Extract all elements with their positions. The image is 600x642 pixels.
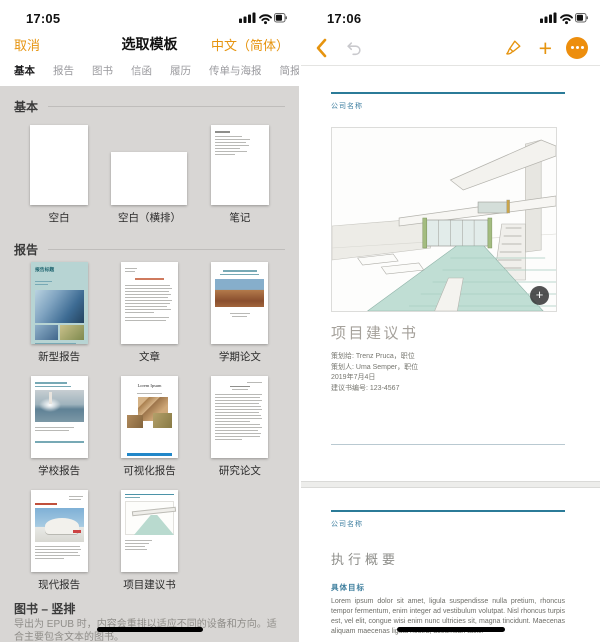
- tab-letters[interactable]: 信函: [131, 63, 152, 78]
- template-blank-landscape[interactable]: 空白（横排）: [111, 115, 187, 225]
- research-paper-cover-art: [211, 376, 268, 458]
- tab-resumes[interactable]: 履历: [170, 63, 191, 78]
- insert-plus-button[interactable]: +: [539, 38, 552, 58]
- meta-line: 2019年7月4日: [331, 373, 565, 384]
- section-header-basic: 基本: [14, 98, 285, 115]
- template-label: 现代报告: [38, 577, 80, 592]
- section-title: 报告: [14, 241, 38, 258]
- template-visual-report[interactable]: Lorem Ipsum 可视化报告: [121, 372, 178, 478]
- school-report-cover-art: [31, 376, 88, 458]
- research-paper-thumbnail[interactable]: [211, 376, 268, 458]
- proposal-meta: 策划给: Trenz Pruca，职位 策划人: Uma Semper，职位 2…: [331, 352, 565, 394]
- article-cover-art: [121, 262, 178, 344]
- project-proposal-cover-art: [121, 490, 178, 572]
- add-image-button[interactable]: +: [530, 286, 549, 305]
- house-sketch: [332, 128, 556, 311]
- template-note[interactable]: 笔记: [211, 115, 269, 225]
- category-tabbar: 基本 报告 图书 信函 履历 传单与海报 简报: [0, 58, 299, 86]
- screenshot-pair: 17:05 取消 选取模板 中文（简体） 基本 报告 图书 信函: [0, 0, 600, 642]
- document-title: 项目建议书: [331, 322, 565, 343]
- status-icons: [239, 11, 287, 25]
- article-thumbnail[interactable]: [121, 262, 178, 344]
- note-thumbnail[interactable]: [211, 125, 269, 205]
- tab-basic[interactable]: 基本: [14, 63, 35, 78]
- template-label: 可视化报告: [123, 463, 176, 478]
- template-modern-report[interactable]: 报告标题 新型报告: [31, 258, 88, 364]
- template-blank[interactable]: 空白: [30, 115, 88, 225]
- back-button[interactable]: [313, 37, 329, 59]
- status-icons: [540, 11, 588, 25]
- template-list: 基本 空白 空白（横排）: [0, 86, 299, 642]
- contemporary-report-thumbnail[interactable]: [31, 490, 88, 572]
- more-button[interactable]: [566, 37, 588, 59]
- page-separator: [301, 481, 600, 488]
- meta-line: 策划人: Uma Semper，职位: [331, 363, 565, 374]
- template-article[interactable]: 文章: [121, 258, 178, 364]
- template-contemporary-report[interactable]: 现代报告: [31, 486, 88, 592]
- template-chooser-screen: 17:05 取消 选取模板 中文（简体） 基本 报告 图书 信函: [0, 0, 299, 642]
- page1-footer-rule: [331, 444, 565, 445]
- section-title: 基本: [14, 98, 38, 115]
- section-divider: [48, 106, 285, 107]
- section-header-books: 图书 – 竖排: [14, 600, 285, 617]
- template-label: 学期论文: [219, 349, 261, 364]
- template-research-paper[interactable]: 研究论文: [211, 372, 268, 478]
- cancel-button[interactable]: 取消: [14, 35, 40, 54]
- visual-report-thumbnail[interactable]: Lorem Ipsum: [121, 376, 178, 458]
- template-label: 研究论文: [219, 463, 261, 478]
- company-name: 公司名称: [331, 519, 565, 529]
- proposal-cover-image[interactable]: +: [331, 127, 557, 312]
- template-label: 空白: [49, 210, 70, 225]
- template-school-report[interactable]: 学校报告: [31, 372, 88, 478]
- format-brush-icon[interactable]: [503, 38, 523, 58]
- header-rule: [331, 510, 565, 512]
- tab-books[interactable]: 图书: [92, 63, 113, 78]
- section-title: 图书 – 竖排: [14, 600, 75, 617]
- section-heading: 执行概要: [331, 549, 565, 568]
- template-term-paper[interactable]: 学期论文: [211, 258, 268, 364]
- meta-line: 建议书编号: 123-4567: [331, 384, 565, 395]
- document-editor-screen: 17:06: [301, 0, 600, 642]
- modern-report-thumbnail[interactable]: 报告标题: [31, 262, 88, 344]
- section-header-report: 报告: [14, 241, 285, 258]
- contemporary-report-cover-art: [31, 490, 88, 572]
- term-paper-cover-art: [211, 262, 268, 344]
- modern-report-cover-art: 报告标题: [31, 262, 88, 344]
- template-label: 文章: [139, 349, 160, 364]
- template-label: 笔记: [229, 210, 250, 225]
- clock: 17:06: [327, 11, 361, 26]
- tab-presentations[interactable]: 简报: [280, 63, 300, 78]
- chooser-navbar: 取消 选取模板 中文（简体）: [0, 30, 299, 58]
- status-bar-right: 17:06: [301, 0, 600, 30]
- language-button[interactable]: 中文（简体）: [211, 35, 289, 54]
- status-bar-left: 17:05: [0, 0, 299, 30]
- template-label: 项目建议书: [123, 577, 176, 592]
- company-name: 公司名称: [331, 101, 565, 111]
- section-divider: [48, 249, 285, 250]
- template-project-proposal[interactable]: 项目建议书: [121, 486, 178, 592]
- project-proposal-thumbnail[interactable]: [121, 490, 178, 572]
- term-paper-thumbnail[interactable]: [211, 262, 268, 344]
- meta-line: 策划给: Trenz Pruca，职位: [331, 352, 565, 363]
- undo-icon[interactable]: [345, 39, 363, 57]
- document-canvas: 公司名称: [301, 66, 600, 642]
- home-indicator[interactable]: [97, 627, 203, 632]
- school-report-thumbnail[interactable]: [31, 376, 88, 458]
- visual-report-cover-art: Lorem Ipsum: [121, 376, 178, 458]
- basic-grid: 空白 空白（横排）: [14, 115, 285, 225]
- home-indicator[interactable]: [397, 627, 505, 632]
- template-label: 学校报告: [38, 463, 80, 478]
- template-label: 空白（横排）: [118, 210, 181, 225]
- tab-flyers-posters[interactable]: 传单与海报: [209, 63, 262, 78]
- clock: 17:05: [26, 11, 60, 26]
- report-grid: 报告标题 新型报告: [14, 258, 285, 592]
- blank-thumbnail[interactable]: [30, 125, 88, 205]
- subheading-1: 具体目标: [331, 582, 565, 593]
- header-rule: [331, 92, 565, 94]
- editor-toolbar: +: [301, 30, 600, 66]
- blank-landscape-thumbnail[interactable]: [111, 152, 187, 205]
- tab-report[interactable]: 报告: [53, 63, 74, 78]
- note-cover-art: [211, 125, 269, 205]
- template-label: 新型报告: [38, 349, 80, 364]
